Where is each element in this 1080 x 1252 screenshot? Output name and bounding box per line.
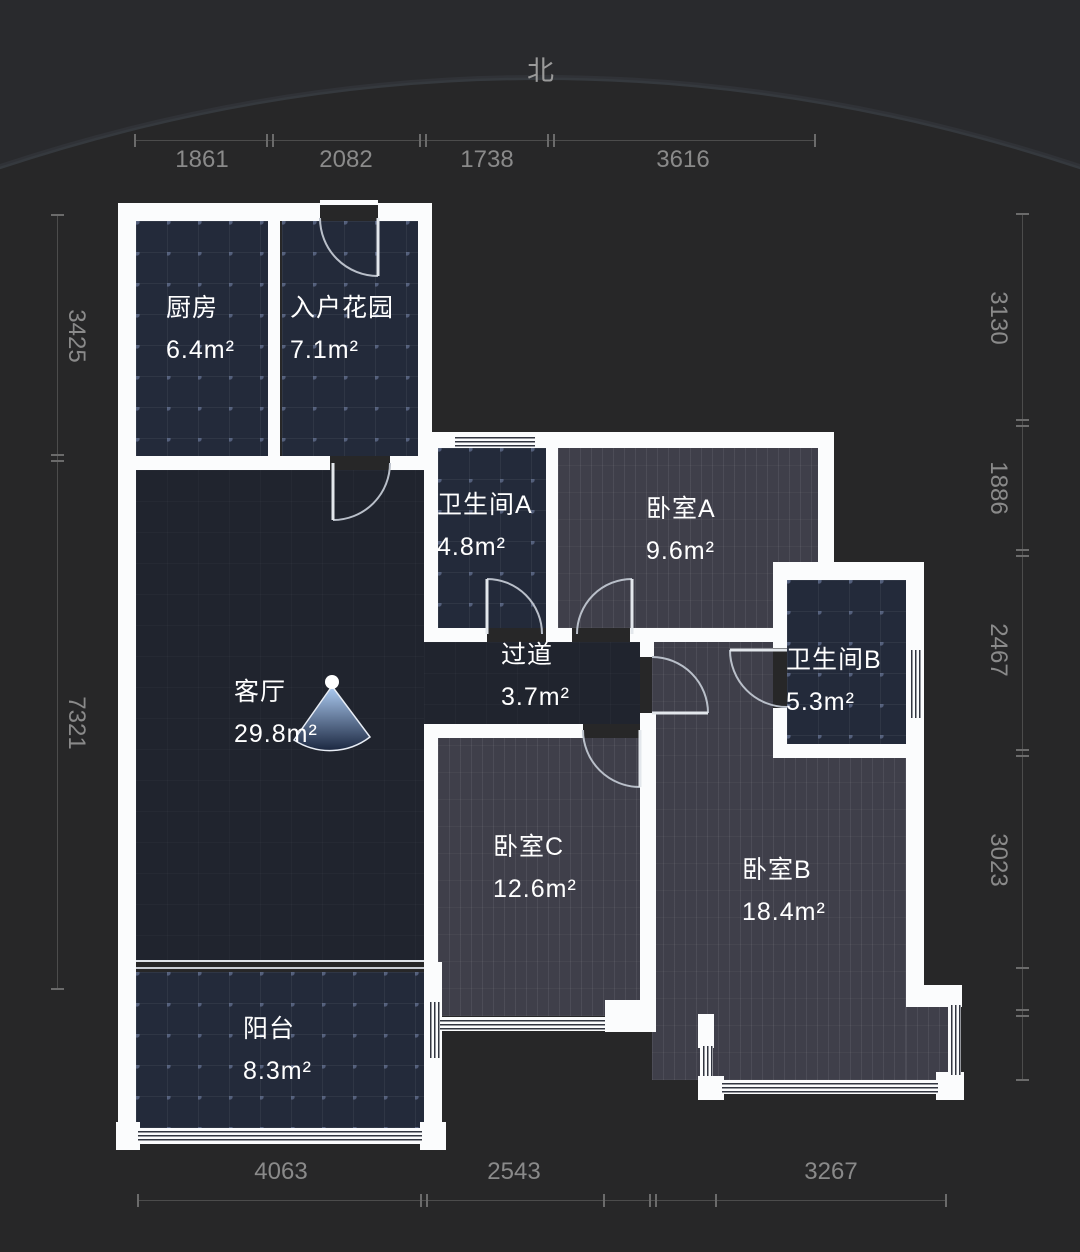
dim-tick [134, 134, 136, 147]
dim-label: 2082 [319, 148, 372, 172]
dim-label: 4063 [254, 1160, 307, 1184]
room-name: 客厅 [234, 680, 318, 705]
dim-tick [649, 1194, 651, 1207]
dim-label: 3267 [804, 1160, 857, 1184]
dim-tick [51, 988, 64, 990]
room-area: 4.8m² [437, 535, 533, 560]
room-name: 卧室B [742, 858, 826, 883]
dim-tick [266, 134, 268, 147]
dim-tick [814, 134, 816, 147]
dim-tick [715, 1194, 717, 1207]
dimension-line-top [135, 140, 815, 141]
dim-label: 1861 [175, 148, 228, 172]
dim-tick [1016, 749, 1029, 751]
room-label-corridor: 过道 3.7m² [501, 643, 570, 710]
room-label-bedroom-a: 卧室A 9.6m² [646, 497, 716, 564]
dimension-line-left [57, 215, 58, 990]
room-area: 3.7m² [501, 685, 570, 710]
dim-tick [137, 1194, 139, 1207]
room-area: 29.8m² [234, 722, 318, 747]
room-area: 8.3m² [243, 1059, 312, 1084]
dim-tick [1016, 1009, 1029, 1011]
room-label-bedroom-b: 卧室B 18.4m² [742, 858, 826, 925]
room-area: 5.3m² [786, 690, 882, 715]
dim-tick [603, 1194, 605, 1207]
room-label-living: 客厅 29.8m² [234, 680, 318, 747]
dim-tick [1016, 213, 1029, 215]
room-name: 阳台 [243, 1017, 312, 1042]
dim-label: 2543 [487, 1160, 540, 1184]
room-name: 卫生间A [437, 493, 533, 518]
room-name: 厨房 [166, 296, 235, 321]
room-label-bathroom-b: 卫生间B 5.3m² [786, 648, 882, 715]
dim-label: 1738 [460, 148, 513, 172]
dim-tick [1016, 967, 1029, 969]
dim-tick [420, 1194, 422, 1207]
dim-label: 3130 [986, 291, 1010, 344]
dim-tick [51, 214, 64, 216]
room-label-balcony: 阳台 8.3m² [243, 1017, 312, 1084]
room-name: 入户花园 [290, 296, 394, 321]
dimension-line-right [1022, 214, 1023, 1080]
room-area: 12.6m² [493, 877, 577, 902]
room-label-bedroom-c: 卧室C 12.6m² [493, 835, 577, 902]
room-area: 6.4m² [166, 338, 235, 363]
dim-label: 3023 [986, 833, 1010, 886]
room-area: 18.4m² [742, 900, 826, 925]
room-area: 7.1m² [290, 338, 394, 363]
dim-tick [51, 454, 64, 456]
door-arcs-layer [0, 0, 1080, 1252]
room-name: 卫生间B [786, 648, 882, 673]
room-label-kitchen: 厨房 6.4m² [166, 296, 235, 363]
dim-label: 3425 [64, 309, 88, 362]
room-label-bathroom-a: 卫生间A 4.8m² [437, 493, 533, 560]
dimension-line-bottom [138, 1200, 946, 1201]
dim-label: 7321 [64, 696, 88, 749]
dim-tick [1016, 419, 1029, 421]
dim-tick [547, 134, 549, 147]
dim-tick [1016, 1079, 1029, 1081]
room-label-entry-garden: 入户花园 7.1m² [290, 296, 394, 363]
room-name: 过道 [501, 643, 570, 668]
dim-label: 2467 [986, 623, 1010, 676]
dim-tick [1016, 549, 1029, 551]
floorplan-canvas: 北 [0, 0, 1080, 1252]
dim-tick [945, 1194, 947, 1207]
dim-label: 1886 [986, 461, 1010, 514]
room-name: 卧室A [646, 497, 716, 522]
dim-tick [419, 134, 421, 147]
room-area: 9.6m² [646, 539, 716, 564]
dim-label: 3616 [656, 148, 709, 172]
room-name: 卧室C [493, 835, 577, 860]
